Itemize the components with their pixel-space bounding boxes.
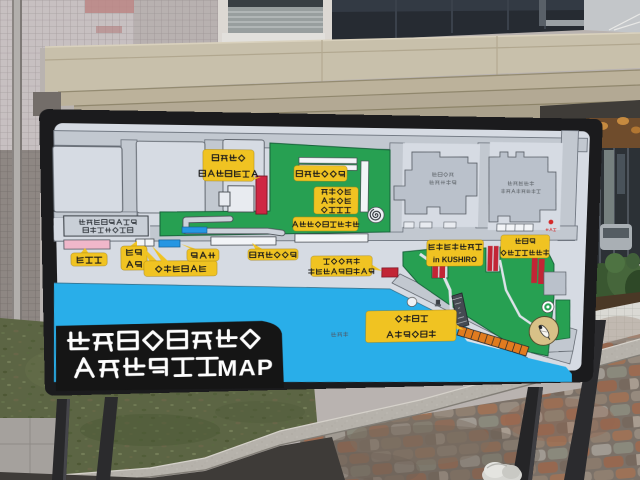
svg-text:in KUSHIRO: in KUSHIRO	[433, 255, 477, 264]
svg-text:MAP: MAP	[217, 356, 274, 382]
